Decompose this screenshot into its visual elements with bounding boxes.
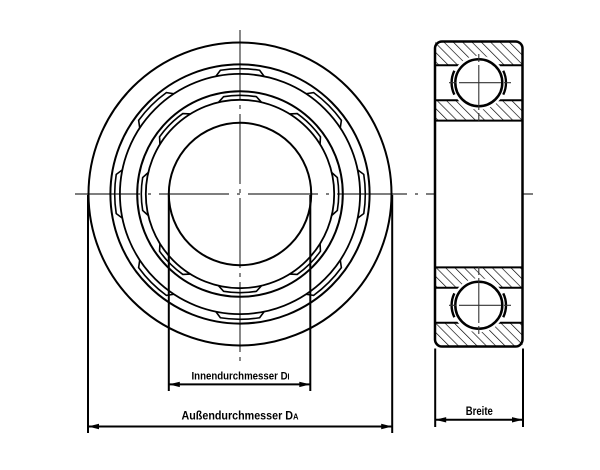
svg-text:Breite: Breite [466, 406, 493, 418]
svg-text:Innendurchmesser DI: Innendurchmesser DI [192, 370, 290, 382]
svg-text:Außendurchmesser DA: Außendurchmesser DA [182, 409, 299, 423]
